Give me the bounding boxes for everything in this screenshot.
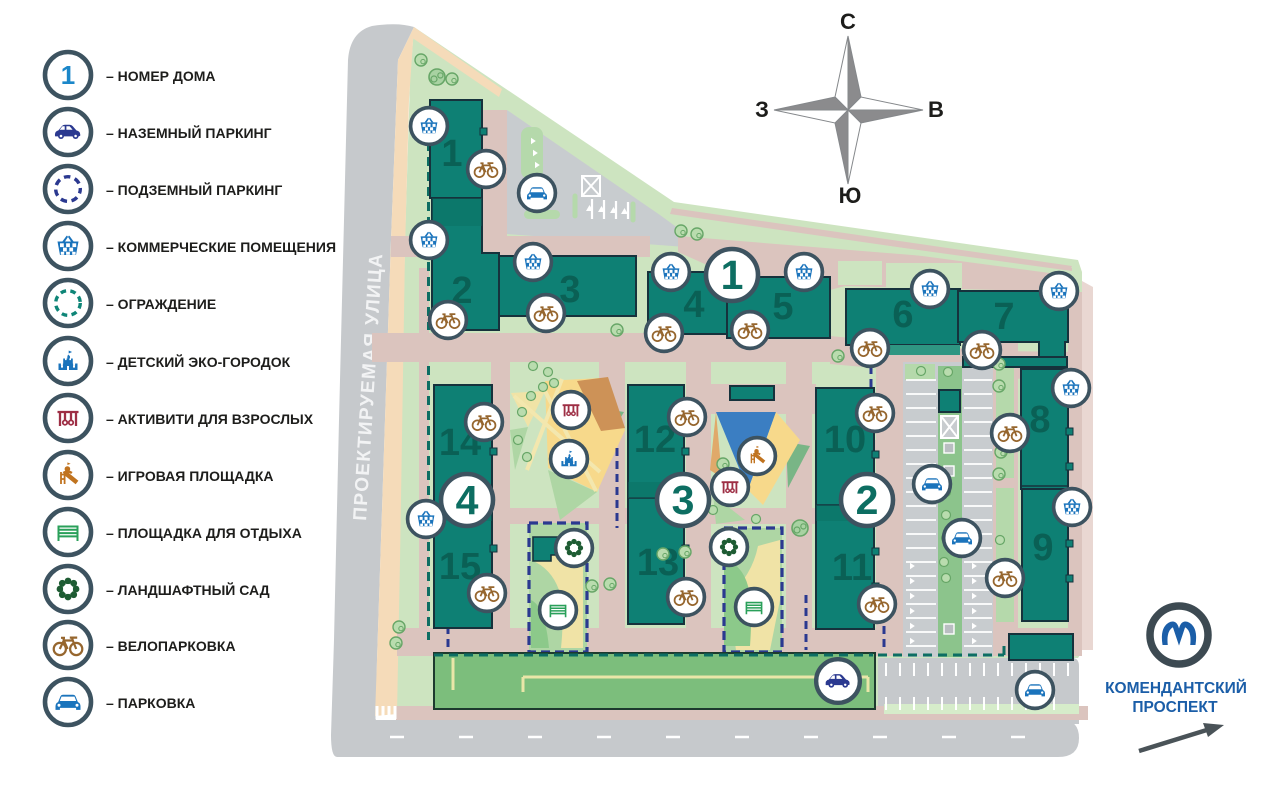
svg-text:1: 1 — [441, 133, 462, 175]
svg-text:1: 1 — [721, 252, 744, 298]
svg-text:2: 2 — [856, 477, 879, 523]
svg-text:4: 4 — [456, 477, 479, 523]
svg-text:ПРОСПЕКТ: ПРОСПЕКТ — [1132, 699, 1218, 716]
svg-text:13: 13 — [637, 542, 679, 584]
svg-text:1: 1 — [61, 60, 75, 90]
svg-text:– ПЛОЩАДКА ДЛЯ ОТДЫХА: – ПЛОЩАДКА ДЛЯ ОТДЫХА — [106, 525, 302, 541]
svg-text:З: З — [755, 97, 769, 122]
svg-text:– ОГРАЖДЕНИЕ: – ОГРАЖДЕНИЕ — [106, 296, 216, 312]
svg-text:КОМЕНДАНТСКИЙ: КОМЕНДАНТСКИЙ — [1105, 679, 1247, 697]
svg-text:Ю: Ю — [839, 183, 862, 208]
svg-text:4: 4 — [683, 284, 704, 326]
svg-text:6: 6 — [892, 294, 913, 336]
svg-text:7: 7 — [993, 296, 1014, 338]
svg-text:– АКТИВИТИ ДЛЯ ВЗРОСЛЫХ: – АКТИВИТИ ДЛЯ ВЗРОСЛЫХ — [106, 411, 314, 427]
svg-text:– НАЗЕМНЫЙ ПАРКИНГ: – НАЗЕМНЫЙ ПАРКИНГ — [106, 124, 272, 141]
svg-text:– ПАРКОВКА: – ПАРКОВКА — [106, 695, 195, 711]
svg-text:– КОММЕРЧЕСКИЕ ПОМЕЩЕНИЯ: – КОММЕРЧЕСКИЕ ПОМЕЩЕНИЯ — [106, 239, 336, 255]
svg-text:– ИГРОВАЯ ПЛОЩАДКА: – ИГРОВАЯ ПЛОЩАДКА — [106, 468, 274, 484]
svg-text:В: В — [928, 97, 944, 122]
svg-text:11: 11 — [832, 547, 872, 589]
svg-text:– ВЕЛОПАРКОВКА: – ВЕЛОПАРКОВКА — [106, 638, 236, 654]
svg-text:– ДЕТСКИЙ ЭКО-ГОРОДОК: – ДЕТСКИЙ ЭКО-ГОРОДОК — [106, 353, 291, 370]
svg-text:– ЛАНДШАФТНЫЙ САД: – ЛАНДШАФТНЫЙ САД — [106, 581, 270, 598]
svg-text:9: 9 — [1032, 527, 1053, 569]
svg-text:– НОМЕР ДОМА: – НОМЕР ДОМА — [106, 68, 216, 84]
svg-text:С: С — [840, 9, 856, 34]
svg-text:– ПОДЗЕМНЫЙ ПАРКИНГ: – ПОДЗЕМНЫЙ ПАРКИНГ — [106, 181, 282, 198]
svg-text:5: 5 — [772, 286, 793, 328]
svg-text:8: 8 — [1029, 399, 1050, 441]
svg-text:3: 3 — [672, 477, 695, 523]
